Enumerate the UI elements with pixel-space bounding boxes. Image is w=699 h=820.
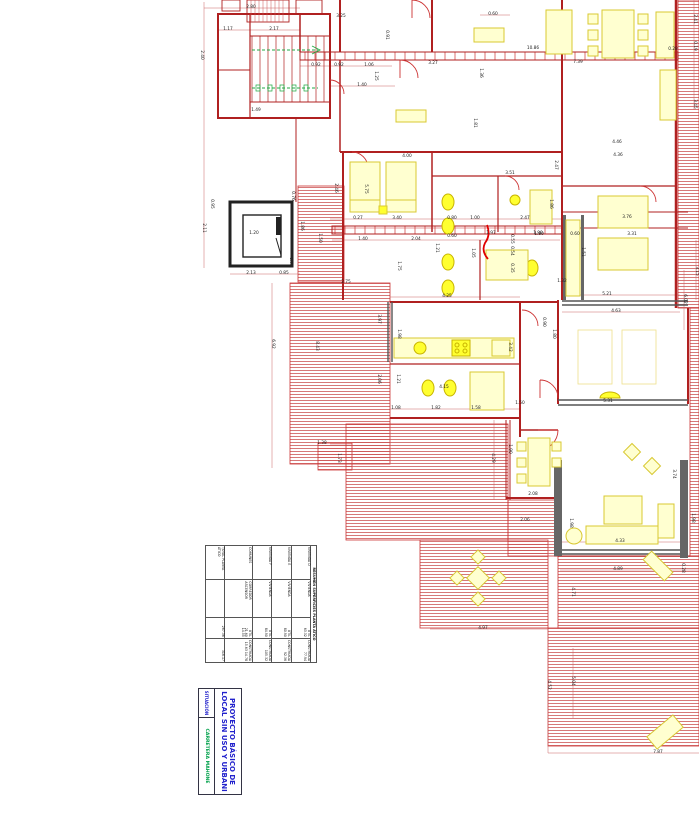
dimension-label: 1.40 (357, 82, 367, 88)
dimension-label: 0.95 (209, 199, 215, 209)
dimension-label: 3.15 (694, 266, 699, 276)
dimension-label: 2.11 (201, 223, 207, 233)
curtain (600, 392, 620, 398)
title-block: PROYECTO BÁSICO DE LOCAL SIN USO Y URBAN… (198, 688, 305, 732)
coffee-table (604, 496, 642, 524)
summary-table-cell (206, 580, 226, 617)
stove (452, 340, 470, 356)
dimension-label: 2.46 (333, 183, 339, 193)
dimension-label: 3.51 (505, 170, 515, 176)
dimension-label: 4.00 (402, 153, 412, 159)
dimension-label: 2.41 (692, 14, 698, 24)
dimension-label: 3.97 (376, 314, 382, 324)
chair (638, 46, 648, 56)
dimension-label: 0.28 (668, 46, 678, 52)
dimension-label: 5.31 (603, 398, 613, 404)
dimension-label: 4.97 (478, 625, 488, 631)
dimension-label: 1.86 (548, 199, 554, 209)
chair (638, 30, 648, 40)
dimension-label: 0.60 (570, 231, 580, 237)
dimension-label: 2.08 (528, 491, 538, 497)
dimension-label: 1.75 (396, 261, 402, 271)
dimension-label: 1.98 (568, 518, 574, 528)
summary-table-cell: VIVIENDA F (252, 546, 271, 580)
dimension-label: 1.32 (557, 278, 567, 284)
dimension-label: 1.80 (551, 329, 557, 339)
armchair (566, 528, 582, 544)
dimension-label: 4.52 (546, 680, 552, 690)
dimension-label: 0.19 (692, 41, 698, 51)
washbasin (422, 380, 434, 396)
dimension-label: 1.82 (431, 405, 441, 411)
dimension-label: 3.76 (622, 214, 632, 220)
dimension-label: 4.36 (613, 152, 623, 158)
armchair (644, 458, 661, 475)
dimension-label: 4.71 (570, 587, 576, 597)
sofa (658, 504, 674, 538)
dimension-label: 6.02 (682, 294, 688, 304)
dimension-label: 1.49 (251, 107, 261, 113)
dimension-label: 1.20 (249, 230, 259, 236)
project-title: PROYECTO BÁSICO DE LOCAL SIN USO Y URBAN… (214, 689, 241, 794)
project-title-line1: PROYECTO BÁSICO DE (228, 698, 236, 785)
dimension-label: 1.90 (507, 444, 513, 454)
project-title-line2: LOCAL SIN USO Y URBANI (220, 691, 228, 791)
drawing-sheet: 2.801.172.173.250.920.921.061.401.492.40… (0, 0, 699, 820)
wardrobe (396, 110, 426, 122)
dimension-label: 2.80 (246, 4, 256, 10)
dimension-label: 3.74 (671, 469, 677, 479)
dimension-label: 1.81 (472, 118, 478, 128)
dimension-label: 0.76 (290, 191, 296, 201)
summary-table: RESUMEN SUPERFICIES PLANTA ÁTICO VIVIEND… (205, 545, 317, 663)
washbasin (510, 195, 520, 205)
bed (598, 196, 648, 228)
dimension-label: 1.21 (395, 374, 401, 384)
chair (517, 458, 526, 467)
sofa (546, 10, 572, 54)
dimension-label: 1.51 (580, 247, 586, 257)
dining-table (602, 10, 634, 58)
dimension-label: 0.54 (509, 246, 515, 256)
summary-table-cell: 316.17 (206, 638, 226, 662)
dimension-label: 3.31 (627, 231, 637, 237)
dimension-label: 1.97 (486, 230, 496, 236)
nightstand (379, 206, 387, 214)
dimension-label: 0.73 (288, 257, 294, 267)
dimension-label: 1.98 (690, 513, 696, 523)
dimension-label: 1.50 (515, 400, 525, 406)
floor-plan-svg: 2.801.172.173.250.920.921.061.401.492.40… (0, 0, 699, 820)
dimension-label: 3.42 (507, 342, 513, 352)
summary-table-cell: CONSTRUIDA15.63 14.78 (225, 638, 252, 662)
dimension-label: 5.75 (363, 184, 369, 194)
dimension-label: 1.73 (336, 453, 342, 463)
dimension-label: 4.89 (613, 566, 623, 572)
dimension-label: 4.15 (439, 384, 449, 390)
summary-table-cell: VIVIENDA (291, 580, 310, 617)
toilet (442, 194, 454, 210)
dimension-label: 1.86 (299, 221, 305, 231)
dimension-label: 1.00 (470, 215, 480, 221)
dimension-label: 3.45 (692, 99, 698, 109)
summary-table-row: VIVIENDA EVIVIENDAÚTIL80.90CONSTRUIDA92.… (272, 546, 291, 663)
dimension-label: 5.04 (570, 676, 576, 686)
armchair (624, 444, 641, 461)
summary-table-cell: CORREDOR ASCENSOR (225, 580, 252, 617)
summary-table-cell: VIVIENDA (272, 580, 291, 617)
dimension-label: 0.91 (384, 30, 390, 40)
dimension-label: 4.29 (490, 453, 496, 463)
dimension-label: 2.75 (341, 279, 351, 285)
chair (552, 442, 561, 451)
dimension-label: 3.27 (428, 60, 438, 66)
summary-table-cell: VIVIENDA D (291, 546, 310, 580)
wardrobe (474, 28, 504, 42)
dimension-label: 1.50 (317, 233, 323, 243)
bathtub (486, 250, 528, 280)
summary-table-title: RESUMEN SUPERFICIES PLANTA ÁTICO (311, 546, 317, 663)
summary-table-row: COMUNESCORREDOR ASCENSORÚTIL21.60 14.55C… (225, 546, 252, 663)
summary-table-cell: CONSTRUIDA77.94 (291, 638, 310, 662)
dimension-label: 0.55 (509, 234, 515, 244)
summary-table-cell: 267.36 (206, 617, 226, 638)
dimension-label: 2.40 (199, 50, 205, 60)
dimension-label: 1.08 (391, 405, 401, 411)
dimension-label: 1.80 (534, 231, 544, 237)
dimension-label: 7.39 (573, 59, 583, 65)
dimension-label: 7.87 (653, 749, 663, 755)
chair (638, 14, 648, 24)
summary-table-block: RESUMEN SUPERFICIES PLANTA ÁTICO VIVIEND… (205, 545, 323, 657)
summary-table-cell: TOTAL PLANTA ÁTICO (206, 546, 226, 580)
summary-table-cell: CONSTRUIDA105.32 (252, 638, 271, 662)
dimension-label: 0.80 (447, 215, 457, 221)
dimension-label: 1.25 (373, 71, 379, 81)
summary-table-cell: VIVIENDA E (272, 546, 291, 580)
chair (552, 458, 561, 467)
dimension-label: 4.33 (615, 538, 625, 544)
summary-table-row: VIVIENDA FVIVIENDAÚTIL84.90CONSTRUIDA105… (252, 546, 271, 663)
dimension-label: 6.92 (270, 339, 276, 349)
dimension-label: 3.40 (392, 215, 402, 221)
dimension-label: 2.47 (553, 160, 559, 170)
summary-table-cell: ÚTIL63.32 (291, 617, 310, 638)
kitchen-sink (414, 342, 426, 354)
dimension-label: 0.28 (680, 563, 686, 573)
dimension-label: 2.06 (520, 517, 530, 523)
elevator (230, 202, 292, 266)
summary-table-cell: ÚTIL84.90 (252, 617, 271, 638)
summary-table-row: VIVIENDA DVIVIENDAÚTIL63.32CONSTRUIDA77.… (291, 546, 310, 663)
dimension-label: 4.63 (611, 308, 621, 314)
summary-table-cell: VIVIENDA (252, 580, 271, 617)
dimension-label: 10.86 (527, 45, 540, 51)
dimension-label: 8.43 (314, 341, 320, 351)
dimension-label: 1.40 (358, 236, 368, 242)
summary-table-cell: ÚTIL80.90 (272, 617, 291, 638)
location-value: CARRETERA MAHONE (199, 718, 214, 794)
dimension-label: 0.60 (488, 11, 498, 17)
summary-table-body: VIVIENDA DVIVIENDAÚTIL63.32CONSTRUIDA77.… (206, 546, 311, 663)
dimension-label: 1.36 (478, 68, 484, 78)
dimension-label: 0.27 (353, 215, 363, 221)
bed (386, 162, 416, 212)
dimension-label: 3.25 (336, 13, 346, 19)
dimension-label: 1.05 (470, 248, 476, 258)
chair (517, 442, 526, 451)
dimension-label: 2.06 (376, 374, 382, 384)
sofa (660, 70, 676, 120)
chair (588, 46, 598, 56)
dimension-label: 2.13 (246, 270, 256, 276)
dimension-label: 0.92 (334, 62, 344, 68)
bed (598, 238, 648, 270)
dimension-label: 0.35 (509, 263, 515, 273)
dimension-label: 0.92 (311, 62, 321, 68)
dimension-label: 4.46 (612, 139, 622, 145)
summary-table-cell: COMUNES (225, 546, 252, 580)
dimension-label: 1.21 (434, 243, 440, 253)
summary-table-cell: ÚTIL21.60 14.55 (225, 617, 252, 638)
dimension-label: 4.25 (442, 293, 452, 299)
dimension-label: 2.17 (269, 26, 279, 32)
dimension-label: 1.17 (223, 26, 233, 32)
chair (588, 14, 598, 24)
roof-boxes (222, 0, 322, 22)
dimension-label: 0.90 (541, 317, 547, 327)
chair (517, 474, 526, 483)
dimension-label: 1.58 (471, 405, 481, 411)
summary-table-row: TOTAL PLANTA ÁTICO267.36316.17 (206, 546, 226, 663)
dimension-label: 0.60 (447, 233, 457, 239)
situacion-label: SITUACIÓN (199, 689, 214, 718)
dimension-label: 1.98 (396, 329, 402, 339)
summary-table-cell: CONSTRUIDA92.36 (272, 638, 291, 662)
toilet (442, 254, 454, 270)
shower (470, 372, 504, 410)
dining-table (528, 438, 550, 486)
dimension-label: 5.21 (602, 291, 612, 297)
dimension-label: 2.47 (520, 215, 530, 221)
dimension-label: 2.04 (411, 236, 421, 242)
dimension-label: 0.85 (279, 270, 289, 276)
chair (588, 30, 598, 40)
dimension-label: 1.38 (317, 440, 327, 446)
dimension-label: 1.06 (364, 62, 374, 68)
